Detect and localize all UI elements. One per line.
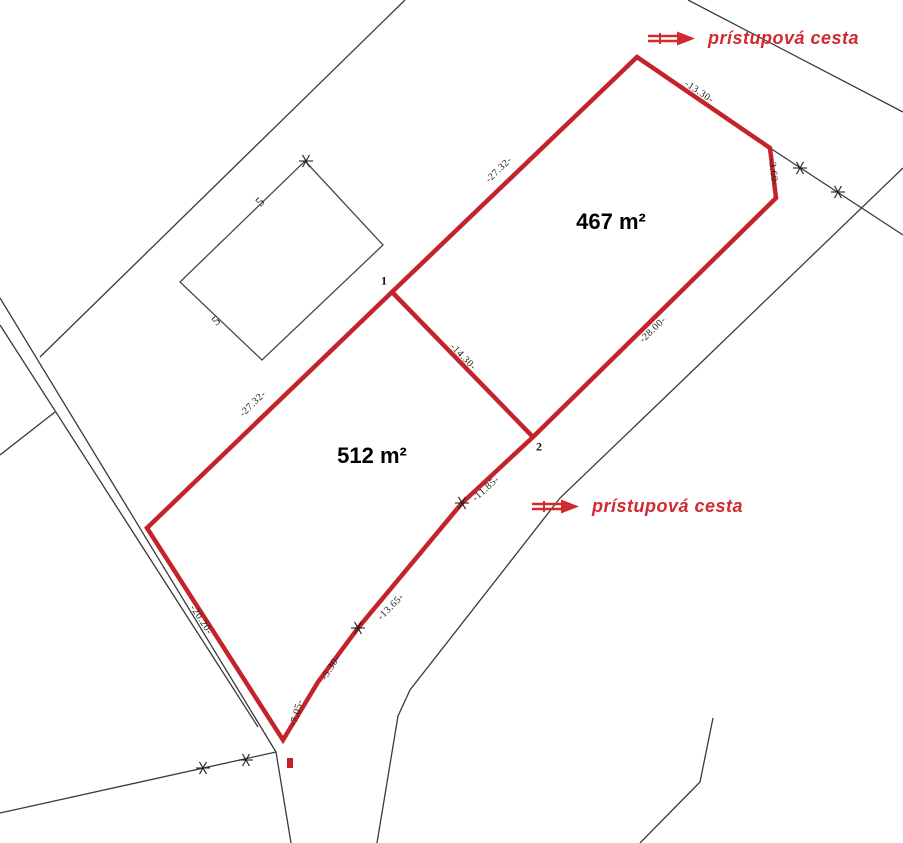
cadastral-boundary-line	[0, 412, 55, 455]
red-point-marker	[287, 758, 293, 768]
vertex-number-label: 1	[381, 274, 387, 289]
right-arrow-icon	[646, 29, 698, 49]
map-geometry	[0, 0, 903, 843]
parcel-area-label: 512 m²	[337, 443, 407, 469]
access-road-text: prístupová cesta	[708, 28, 859, 49]
access-road-label: prístupová cesta	[530, 496, 743, 517]
access-road-text: prístupová cesta	[592, 496, 743, 517]
access-road-label: prístupová cesta	[646, 28, 859, 49]
cadastral-map: -13.30--3.60--27.32--27.32--28.00--14.30…	[0, 0, 903, 843]
parcel-area-label: 467 m²	[576, 209, 646, 235]
cadastral-boundary-line	[0, 325, 258, 727]
cadastral-boundary-line	[0, 298, 276, 752]
cadastral-boundary-line	[0, 752, 276, 813]
cadastral-boundary-line	[40, 0, 405, 357]
vertex-number-label: 2	[536, 440, 542, 455]
cadastral-boundary-line	[640, 718, 713, 843]
cadastral-boundary-line	[688, 0, 903, 112]
right-arrow-icon	[530, 497, 582, 517]
